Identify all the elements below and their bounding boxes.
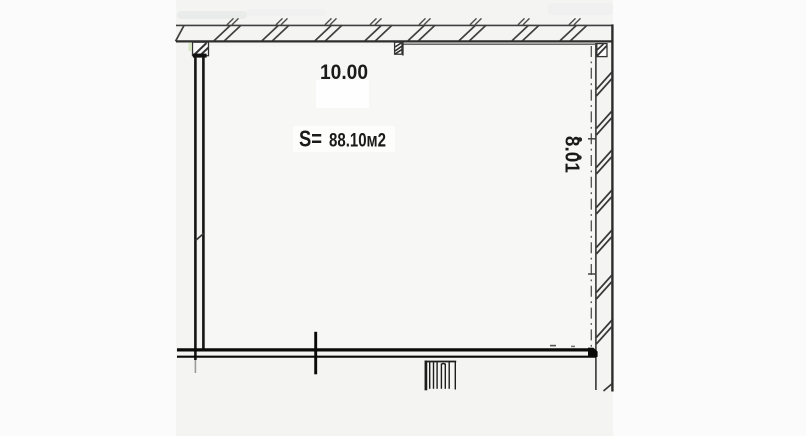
svg-text:10.00: 10.00: [320, 61, 368, 84]
svg-text:8.01: 8.01: [561, 136, 583, 173]
svg-text:88.10м2: 88.10м2: [329, 129, 386, 151]
svg-text:S=: S=: [299, 125, 322, 151]
